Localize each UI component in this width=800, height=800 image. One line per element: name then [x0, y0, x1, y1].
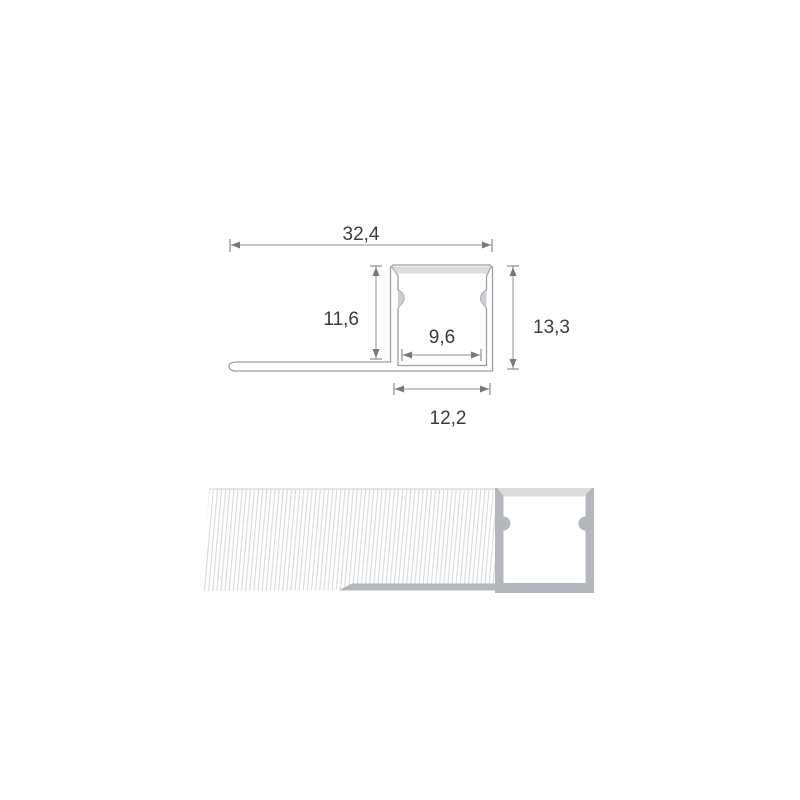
diffuser-cover [497, 488, 592, 497]
channel-right-wall [586, 488, 595, 593]
channel-bottom [495, 583, 594, 593]
dimension-label-channel-inner-height: 11,6 [323, 309, 359, 330]
left-wall-notch [504, 517, 511, 531]
installation-illustration [203, 488, 594, 593]
dimension-overall-width: 32,4 [230, 224, 492, 252]
dimension-label-overall-width: 32,4 [343, 224, 380, 245]
diagram-svg: 32,4 11,6 9,6 13,3 [0, 0, 800, 800]
dimension-arrow [395, 386, 404, 393]
dimension-arrow [231, 242, 240, 249]
dimension-arrow [373, 267, 380, 276]
tile-adhesive-hatch [203, 489, 497, 591]
dimension-label-inner-seat-width: 9,6 [429, 327, 455, 348]
product-technical-diagram: 32,4 11,6 9,6 13,3 [0, 0, 800, 800]
dimension-channel-inner-height: 11,6 [323, 266, 382, 359]
dimension-arrow [480, 386, 489, 393]
dimension-label-overall-height: 13,3 [533, 317, 570, 338]
dimension-label-channel-outer-width: 12,2 [430, 408, 467, 429]
dimension-arrow [510, 267, 517, 276]
dimension-arrow [482, 242, 491, 249]
channel-left-wall [495, 488, 504, 593]
dimension-overall-height: 13,3 [507, 266, 570, 369]
diffuser-strip [392, 267, 491, 274]
dimension-arrow [373, 349, 380, 358]
profile-flange [338, 584, 497, 591]
dimension-arrow [510, 359, 517, 368]
dimension-channel-outer-width: 12,2 [394, 383, 490, 429]
right-wall-notch [579, 517, 586, 531]
